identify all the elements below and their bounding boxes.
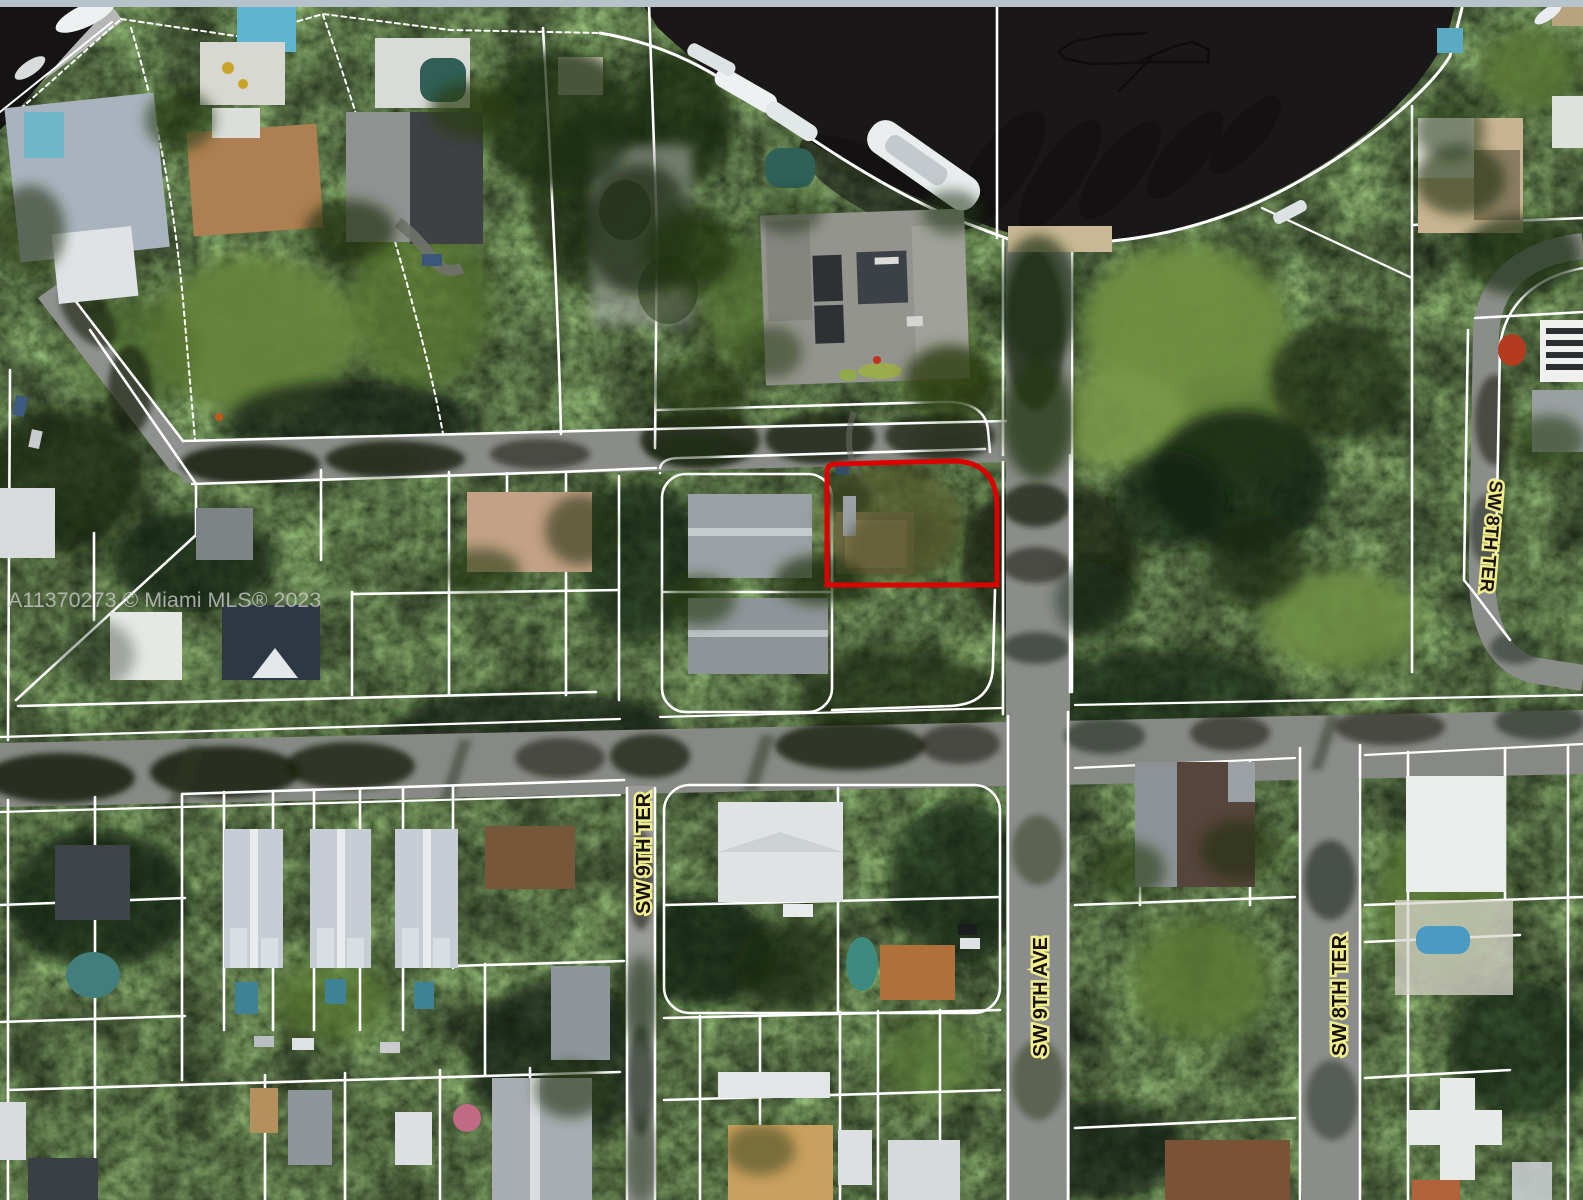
svg-text:A11370273 © Miami MLS® 2023: A11370273 © Miami MLS® 2023 <box>8 588 321 612</box>
svg-text:SW 8TH TER: SW 8TH TER <box>1329 934 1351 1056</box>
svg-text:SW 9TH AVE: SW 9TH AVE <box>1030 937 1052 1057</box>
svg-text:SW 9TH TER: SW 9TH TER <box>633 792 655 914</box>
